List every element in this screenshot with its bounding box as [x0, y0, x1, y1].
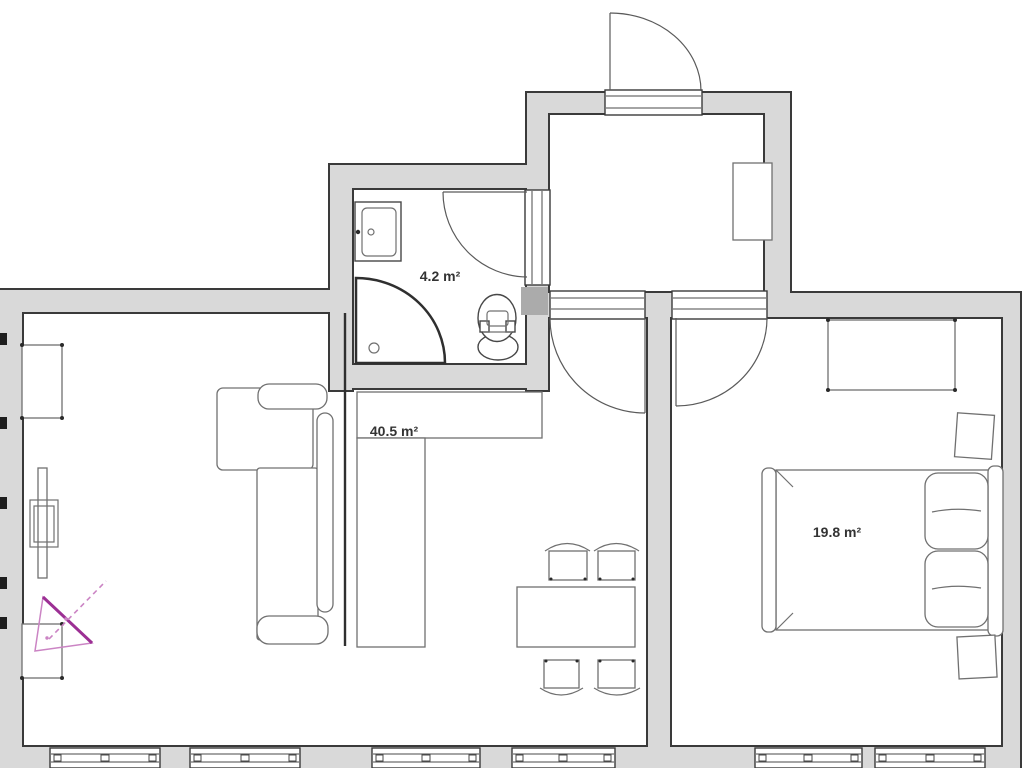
wall-shelf-top: [20, 343, 64, 420]
window: [50, 748, 160, 768]
entrance-door-swing: [610, 13, 701, 91]
dining-set: [517, 544, 640, 696]
living-room-door-frame: [550, 291, 645, 319]
living-room-furniture: [20, 343, 640, 695]
bedroom-area-label: 19.8 m²: [813, 524, 862, 540]
hall-furniture: [733, 163, 772, 240]
window: [190, 748, 300, 768]
kitchen-counter-side: [357, 438, 425, 647]
window: [875, 748, 985, 768]
double-bed: [762, 466, 1003, 636]
floor-plan-drawing: 4.2 m² 40.5 m² 19.8 m²: [0, 0, 1024, 768]
tv: [38, 468, 47, 578]
floor-plan-canvas: 4.2 m² 40.5 m² 19.8 m²: [0, 0, 1024, 768]
dining-table: [517, 587, 635, 647]
bedroom-furniture: [762, 318, 1003, 679]
bathroom-area-label: 4.2 m²: [420, 268, 461, 284]
corner-sofa: [217, 384, 333, 644]
toilet: [478, 295, 518, 361]
bathroom-door-swing: [443, 192, 527, 277]
chair: [540, 660, 583, 696]
wall-junction-block: [521, 287, 548, 315]
window: [372, 748, 480, 768]
wall-bathroom-north: [330, 165, 548, 188]
tv-unit: [30, 468, 58, 578]
bedroom-door-frame: [672, 291, 767, 319]
wall-west: [0, 290, 22, 768]
bedroom-wardrobe: [826, 318, 957, 392]
wall-east: [1003, 296, 1020, 768]
chair: [545, 544, 590, 581]
chair: [594, 544, 639, 581]
corner-shower: [356, 278, 445, 363]
bed-headboard: [988, 466, 1003, 636]
entrance-door-frame: [605, 90, 702, 115]
sink: [355, 202, 401, 261]
bedroom-door-swing: [676, 318, 767, 406]
hall-wardrobe: [733, 163, 772, 240]
window: [755, 748, 862, 768]
bathroom-door-frame: [525, 190, 550, 285]
living-area-label: 40.5 m²: [370, 423, 419, 439]
wall-bathroom-west: [330, 165, 352, 390]
nightstand: [955, 413, 995, 459]
window: [512, 748, 615, 768]
wall-north-living: [0, 290, 345, 312]
wall-room-divider: [648, 317, 670, 747]
bed-footboard: [762, 468, 776, 632]
door-frames: [525, 90, 767, 319]
living-room-door-swing: [550, 318, 645, 413]
nightstand: [957, 635, 997, 679]
windows: [50, 748, 985, 768]
wall-bathroom-south: [330, 365, 548, 388]
chair: [594, 660, 640, 696]
